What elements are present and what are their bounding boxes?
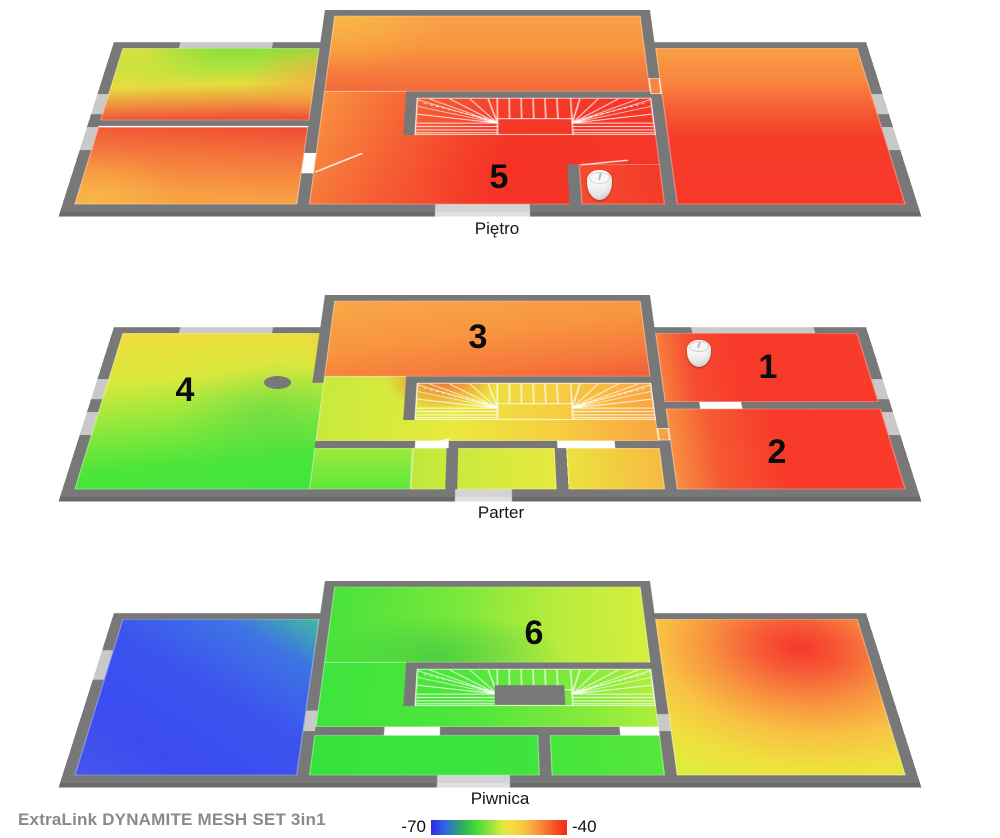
wall [306,581,335,710]
signal-marker: 4 [176,373,195,407]
wall [555,448,569,489]
mesh-device-icon [687,340,711,367]
wall [567,164,581,204]
wall [856,42,920,212]
entry-door-segment [437,775,510,783]
door-leaf [622,731,660,732]
wall [99,120,310,126]
wall-base [59,212,922,217]
wall [659,440,677,489]
room-fill [324,587,650,663]
signal-marker: 6 [525,616,544,650]
floor-pietro [60,0,920,220]
door-opening [657,714,671,731]
wall [60,327,124,497]
wall [112,327,331,333]
room-fill [579,164,665,204]
signal-marker: 1 [759,350,778,384]
wall [60,489,920,497]
wall-base [59,783,922,788]
room-fill [309,448,413,489]
wall [403,662,417,706]
wall [406,376,651,382]
room-fill [74,619,319,775]
stairs [415,98,656,135]
annotation-overlay: 5 Piętro 1 2 3 4 Parter 6 Piwnica [0,0,1000,838]
wall [406,91,651,97]
window-segment [91,379,108,399]
wall [403,376,417,420]
entry-door-segment [455,489,512,497]
room-fill [100,48,319,120]
wall [324,10,651,16]
wall [495,685,566,705]
room-fill [74,333,409,489]
room-fill [324,16,650,92]
room-fill [566,448,665,489]
room-fill [655,48,905,204]
floorplan-parter [58,295,921,502]
stairs [415,383,656,420]
door-leaf [700,405,742,406]
window-segment [179,327,273,333]
entry-door-segment [455,497,512,502]
room-fill [309,735,540,775]
room-fill [550,735,665,775]
mesh-device-icon [587,170,612,200]
signal-marker: 5 [490,160,509,194]
product-brand-caption: ExtraLink DYNAMITE MESH SET 3in1 [18,810,326,830]
wall [538,735,551,775]
door-leaf [386,734,438,735]
wall [856,613,920,783]
wall [640,10,660,78]
wall [651,94,677,204]
floor-piwnica [60,414,920,791]
wall-base [59,497,922,502]
room-fill [324,301,650,377]
wall [445,448,458,489]
window-segment [179,42,273,48]
room-fill [410,448,556,489]
wall [112,42,331,48]
wall [659,731,677,775]
wall [60,775,920,783]
wall [60,204,920,212]
window-segment [691,327,815,333]
entry-door-segment [437,783,510,788]
floor-parter [60,128,920,505]
room-fill [655,333,878,402]
floor-label-piwnica: Piwnica [471,789,530,809]
wall [644,42,868,48]
wall [324,295,651,301]
floorplan-piwnica [58,581,921,788]
scale-gradient-bar [431,820,567,835]
door-leaf [415,438,450,448]
wall [406,662,651,668]
wall [440,727,620,735]
door-leaf [315,153,363,173]
entry-door-segment [435,212,530,217]
window-segment [882,127,901,150]
door-opening [657,428,670,440]
wall [112,613,331,619]
wall [640,295,669,428]
room-fill [666,409,906,490]
wall [60,613,124,783]
wall [741,402,881,409]
column [264,376,291,389]
wall [665,402,701,409]
scale-min-label: -70 [385,817,426,837]
scale-max-label: -40 [572,817,597,837]
room-fill [74,127,308,204]
window-segment [882,412,901,435]
door-leaf [581,160,629,166]
wifi-heatmap-visualization: 5 Piętro 1 2 3 4 Parter 6 Piwnica ExtraL… [0,0,1000,838]
window-segment [91,94,108,114]
wall [314,727,384,735]
signal-marker: 2 [768,435,787,469]
wall [640,581,669,714]
wall [644,327,868,333]
signal-scale-legend: -70 -40 [385,817,645,838]
window-segment [872,94,889,114]
hallway-fill [309,91,665,204]
room-fill [655,619,905,775]
wall [315,441,416,448]
stairs [415,669,656,706]
door-opening [303,711,317,731]
wall [615,441,660,448]
wall [449,441,558,448]
wall [297,731,315,775]
door-opening [649,78,662,94]
hallway-fill [316,662,659,727]
floor-label-pietro: Piętro [475,219,519,239]
hallway-fill [316,376,659,441]
wall [297,173,313,204]
signal-marker: 3 [469,320,488,354]
floor-label-parter: Parter [478,503,524,523]
wall [304,10,335,153]
wall [644,613,868,619]
window-segment [80,127,99,150]
wall [856,327,920,497]
window-segment [80,412,99,435]
entry-door-segment [435,204,530,212]
floorplan-pietro [58,10,921,217]
wall [403,91,417,135]
wall [324,581,651,587]
wall [60,42,124,212]
wall [312,295,335,383]
window-segment [93,650,113,679]
window-segment [872,379,889,399]
